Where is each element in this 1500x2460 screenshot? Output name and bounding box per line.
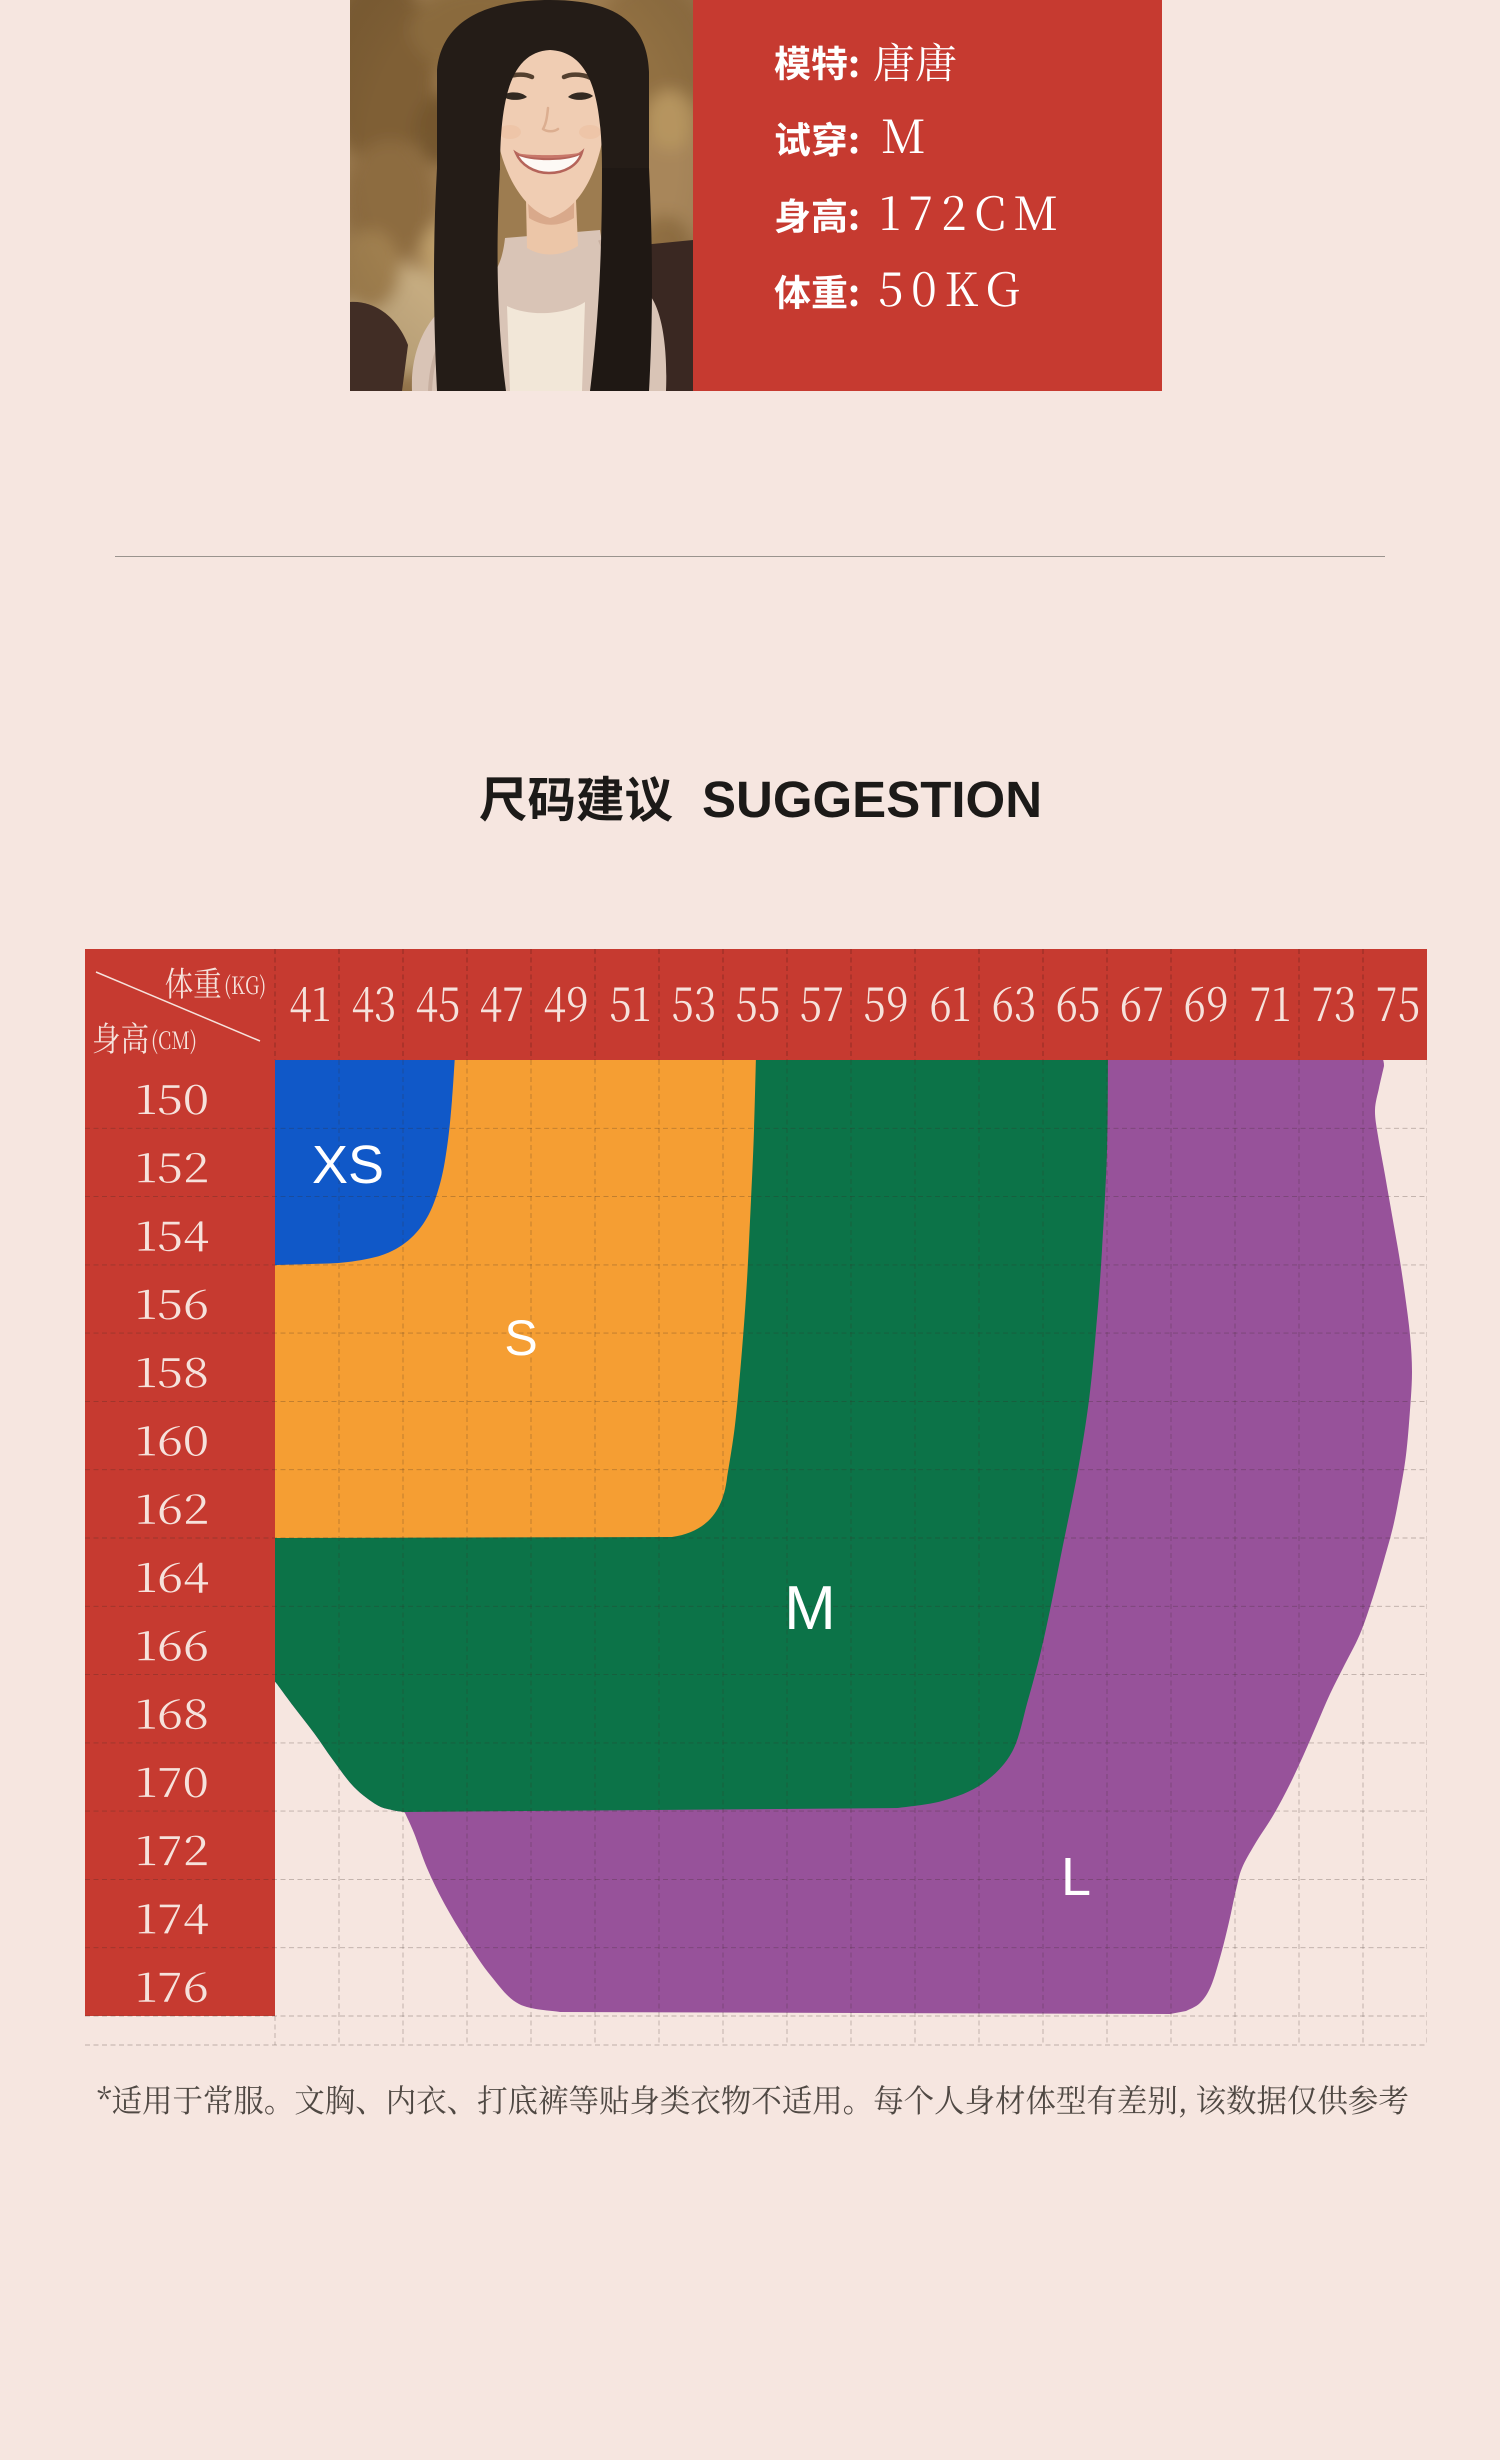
svg-text:L: L — [1061, 1847, 1091, 1907]
svg-text:SUGGESTION: SUGGESTION — [702, 771, 1042, 828]
svg-text:S: S — [504, 1310, 537, 1366]
svg-text:XS: XS — [312, 1135, 384, 1195]
svg-text:M: M — [784, 1574, 836, 1643]
